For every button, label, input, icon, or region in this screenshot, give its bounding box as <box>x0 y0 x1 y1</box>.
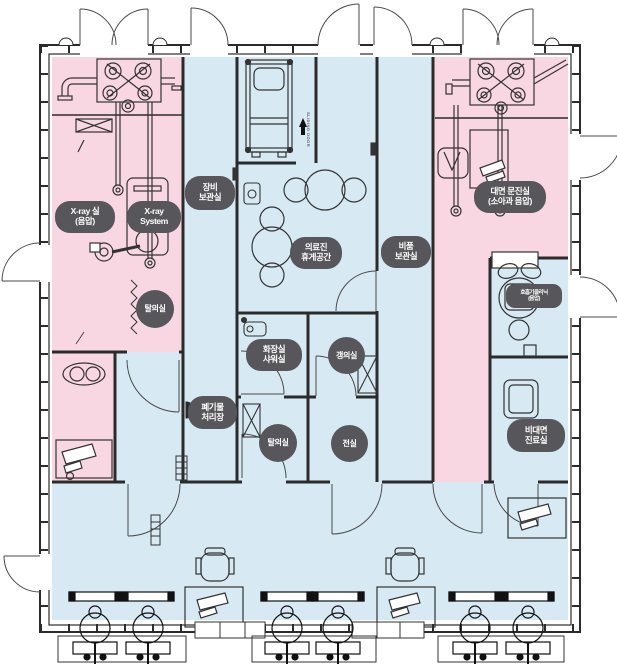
booths <box>69 592 554 664</box>
vent-caps <box>59 38 559 45</box>
booth-icon <box>449 592 501 664</box>
corner-desk <box>508 498 566 538</box>
badge-line: 전실 <box>343 439 357 448</box>
badge-line: 보관실 <box>199 193 221 203</box>
sink-icon <box>244 183 260 204</box>
badge-waste-disposal: 폐기물 처리장 <box>188 396 237 429</box>
booth-icon <box>261 592 313 664</box>
badge-line: 진료실 <box>525 436 547 446</box>
badge-line: 보관실 <box>395 252 417 262</box>
badge-line: 처리장 <box>201 413 223 423</box>
badge-line: System <box>140 217 168 227</box>
floor-plan: X-ray 실 (음압) X-ray System 장비 보관실 의료진 휴게공… <box>0 0 617 672</box>
badge-consultation: 대면 문진실 (소아과 음압) <box>474 181 546 213</box>
badge-line: 갱의실 <box>336 351 357 360</box>
sliding-door-annotation: SLIDING DOOR <box>306 112 311 147</box>
badge-supplies-storage: 비품 보관실 <box>381 236 431 268</box>
booth-icon <box>502 592 554 664</box>
badge-staff-lounge: 의료진 휴게공간 <box>290 237 342 269</box>
badge-remote-care: 비대면 진료실 <box>507 419 565 452</box>
badge-xray-room: X-ray 실 (음압) <box>55 201 115 233</box>
exam-couch <box>56 363 112 480</box>
lounge-tables <box>252 170 366 287</box>
badge-xray-system: X-ray System <box>127 201 181 233</box>
badge-dressing-upper: 탈의실 <box>136 290 174 328</box>
office-desk-right <box>377 548 435 627</box>
booth-icon <box>122 592 174 664</box>
badge-line: 휴게공간 <box>301 253 331 263</box>
plan-linework <box>0 0 617 672</box>
booth-icon <box>69 592 121 664</box>
badge-line: (소아과 음압) <box>488 197 532 207</box>
office-desk-left <box>185 548 243 627</box>
badge-line: 샤워실 <box>263 355 285 365</box>
badge-line: (음압) <box>75 217 95 227</box>
hvac-unit-left <box>58 59 181 268</box>
badge-anteroom: 전실 <box>331 425 368 462</box>
badge-changing-room: 갱의실 <box>328 337 365 374</box>
badge-line: (음압) <box>528 296 540 302</box>
bed-icon <box>246 60 293 158</box>
treatment-chair <box>492 252 543 418</box>
toilet-icon <box>242 318 267 337</box>
badge-toilet-shower: 화장실 샤워실 <box>246 339 302 371</box>
badge-line: 탈의실 <box>268 438 289 447</box>
badge-dressing-lower: 탈의실 <box>259 424 297 462</box>
badge-respiratory-clinic: 호흡기클리닉 (음압) <box>506 284 562 308</box>
badge-line: 탈의실 <box>145 304 166 313</box>
badge-equipment-storage: 장비 보관실 <box>185 176 235 210</box>
